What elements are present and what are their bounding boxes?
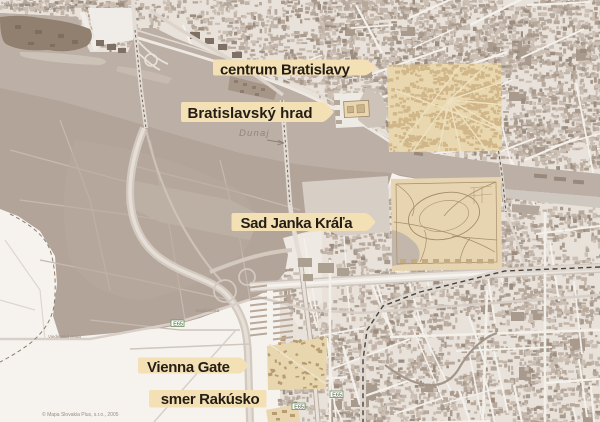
svg-text:centrum Bratislavy: centrum Bratislavy: [220, 61, 351, 78]
svg-text:Vienna Gate: Vienna Gate: [147, 359, 230, 376]
svg-text:E65: E65: [173, 321, 183, 327]
svg-text:smer Rakúsko: smer Rakúsko: [161, 391, 260, 408]
svg-text:Bratislavský hrad: Bratislavský hrad: [188, 105, 313, 122]
svg-text:Nad lomom: Nad lomom: [4, 2, 27, 7]
svg-text:E65: E65: [332, 392, 342, 398]
svg-text:Dunaj: Dunaj: [239, 128, 270, 139]
svg-text:E65: E65: [294, 404, 304, 410]
svg-text:© Mapa Slovakia Plus, s.r.o.,: © Mapa Slovakia Plus, s.r.o., 2005: [42, 411, 119, 418]
svg-text:Viedenská cesta: Viedenská cesta: [48, 334, 81, 339]
svg-text:Kopčianska: Kopčianska: [196, 308, 220, 313]
svg-text:Sad Janka Kráľa: Sad Janka Kráľa: [241, 215, 354, 232]
